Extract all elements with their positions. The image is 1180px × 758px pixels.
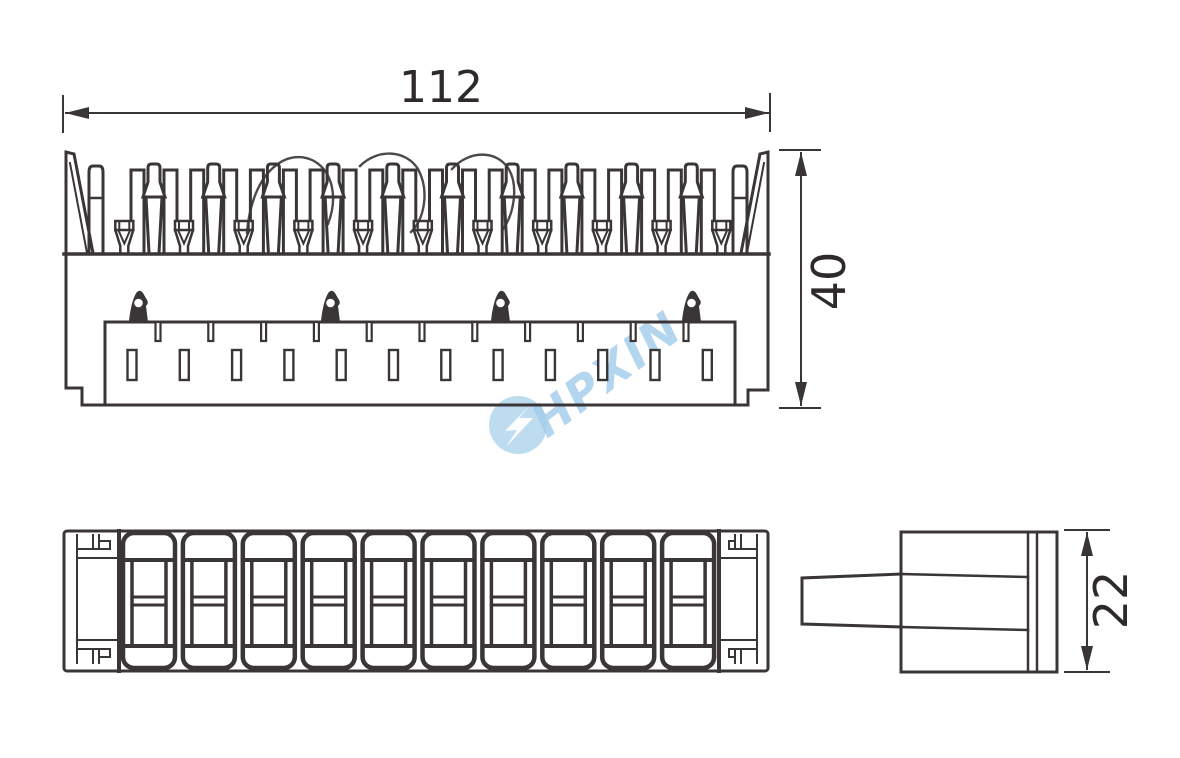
clamp-cap xyxy=(712,221,730,230)
thin-slot xyxy=(472,322,477,341)
arrow-up-icon xyxy=(795,152,807,176)
wide-slot xyxy=(284,350,293,380)
contact-pin-stem xyxy=(385,197,401,253)
contact-pin-stem xyxy=(624,197,640,253)
dim-width-label: 112 xyxy=(399,62,483,113)
hook-hole xyxy=(326,299,335,308)
clamp-cap xyxy=(115,221,133,230)
dim-height-label: 40 xyxy=(802,252,856,311)
arrow-up-icon xyxy=(1081,532,1093,556)
clamp-cap xyxy=(235,221,253,230)
clamp-cap xyxy=(653,221,671,230)
arrow-right-icon xyxy=(745,107,769,119)
side-view xyxy=(802,532,1057,672)
clamp-cap xyxy=(294,221,312,230)
thin-slot xyxy=(420,322,425,341)
dimension-height: 40 xyxy=(779,150,856,408)
wide-slot xyxy=(128,350,137,380)
front-view xyxy=(64,531,768,671)
thin-slot xyxy=(261,322,266,341)
tab-through-lines xyxy=(901,574,1028,630)
clamp-cap xyxy=(175,221,193,230)
thin-slot xyxy=(208,322,213,341)
technical-drawing-canvas: HPXIN 112 xyxy=(0,0,1180,758)
contact-pin-stem xyxy=(564,197,580,253)
contact-pin xyxy=(621,164,643,197)
latch-hooks xyxy=(129,291,701,322)
contact-pin xyxy=(561,164,583,197)
hook-hole xyxy=(687,299,696,308)
thin-slot xyxy=(156,322,161,341)
left-end-cap xyxy=(77,531,122,671)
dim-side-height-label: 22 xyxy=(1084,571,1138,630)
wide-slot xyxy=(232,350,241,380)
thin-slot xyxy=(578,322,583,341)
contact-pin xyxy=(382,164,404,197)
wide-slot xyxy=(441,350,450,380)
technical-drawing-page: HPXIN 112 xyxy=(0,0,1180,758)
contact-pin xyxy=(680,164,702,197)
wide-slot xyxy=(494,350,503,380)
dimension-width: 112 xyxy=(63,62,770,133)
thin-slot xyxy=(367,322,372,341)
wide-slot xyxy=(546,350,555,380)
thin-slot xyxy=(631,322,636,341)
dimension-side-height: 22 xyxy=(1064,530,1138,672)
contact-pin-stem xyxy=(683,197,699,253)
wide-slot xyxy=(337,350,346,380)
top-view xyxy=(64,152,769,405)
thin-slot xyxy=(525,322,530,341)
side-body xyxy=(901,532,1057,672)
contact-pin-stem xyxy=(206,197,222,253)
contact-pin-stem xyxy=(146,197,162,253)
clamp-cap xyxy=(354,221,372,230)
wide-slot xyxy=(651,350,660,380)
wide-slot xyxy=(180,350,189,380)
arrow-down-icon xyxy=(1081,646,1093,670)
clamp-cap xyxy=(533,221,551,230)
mounting-tab xyxy=(802,574,901,627)
wide-slot xyxy=(598,350,607,380)
contact-pin-stem xyxy=(265,197,281,253)
side-panel-lines xyxy=(1028,532,1037,672)
module-row xyxy=(123,533,714,668)
right-end-cap xyxy=(719,531,757,671)
wide-slot xyxy=(389,350,398,380)
contact-pin-stem xyxy=(445,197,461,253)
clamp-cap xyxy=(474,221,492,230)
contact-pin xyxy=(203,164,225,197)
clamp-cap xyxy=(593,221,611,230)
wide-slot xyxy=(703,350,712,380)
thin-slot xyxy=(314,322,319,341)
hook-hole xyxy=(496,299,505,308)
thin-slot xyxy=(684,322,689,341)
arrow-down-icon xyxy=(795,382,807,406)
contact-pin xyxy=(143,164,165,197)
arrow-left-icon xyxy=(65,107,89,119)
hook-hole xyxy=(134,299,143,308)
